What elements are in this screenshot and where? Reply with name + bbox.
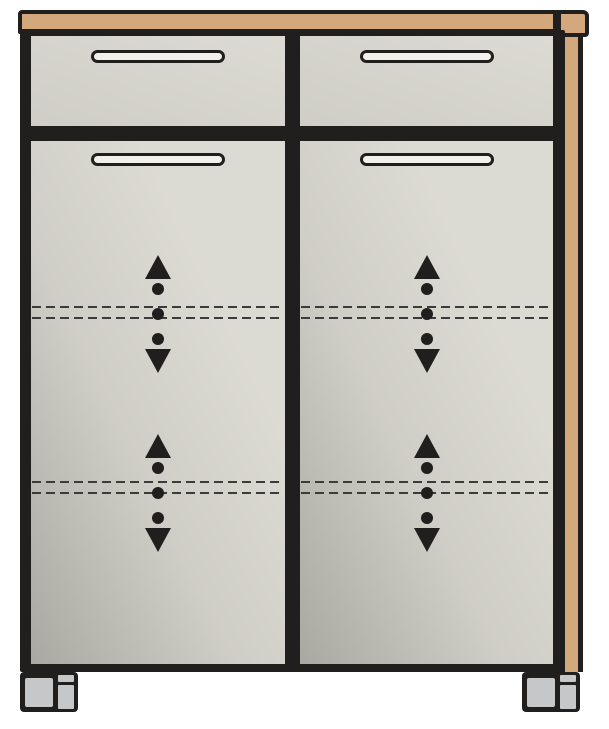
dot-icon xyxy=(152,512,164,524)
arrow-up-icon xyxy=(145,255,171,279)
cabinet-body xyxy=(20,30,565,672)
dot-icon xyxy=(421,487,433,499)
foot-side-face xyxy=(560,685,576,709)
dot-icon xyxy=(152,487,164,499)
arrow-up-icon xyxy=(414,434,440,458)
handle-bar-icon xyxy=(91,50,225,63)
handle-bar-icon xyxy=(360,50,494,63)
dot-icon xyxy=(421,283,433,295)
dot-icon xyxy=(152,462,164,474)
dot-icon xyxy=(421,462,433,474)
drawer-right xyxy=(300,36,553,126)
foot-side-top xyxy=(560,675,576,682)
arrow-down-icon xyxy=(145,528,171,552)
foot-front-face xyxy=(25,678,53,707)
shelf-adjust-indicator xyxy=(414,434,440,552)
foot-front-face xyxy=(527,678,555,707)
foot-left xyxy=(20,672,78,712)
handle-bar-icon xyxy=(91,153,225,166)
handle-bar-icon xyxy=(360,153,494,166)
arrow-up-icon xyxy=(145,434,171,458)
foot-right xyxy=(522,672,580,712)
foot-side-top xyxy=(58,675,74,682)
drawer-left xyxy=(31,36,285,126)
dot-icon xyxy=(421,512,433,524)
dot-icon xyxy=(152,283,164,295)
door-right xyxy=(300,141,553,664)
cabinet-diagram xyxy=(0,0,609,729)
arrow-down-icon xyxy=(414,349,440,373)
arrow-down-icon xyxy=(145,349,171,373)
shelf-adjust-indicator xyxy=(145,255,171,373)
shelf-adjust-indicator xyxy=(145,434,171,552)
dot-icon xyxy=(152,308,164,320)
dot-icon xyxy=(421,333,433,345)
dot-icon xyxy=(421,308,433,320)
dot-icon xyxy=(152,333,164,345)
door-left xyxy=(31,141,285,664)
arrow-down-icon xyxy=(414,528,440,552)
shelf-adjust-indicator xyxy=(414,255,440,373)
foot-side-face xyxy=(58,685,74,709)
arrow-up-icon xyxy=(414,255,440,279)
